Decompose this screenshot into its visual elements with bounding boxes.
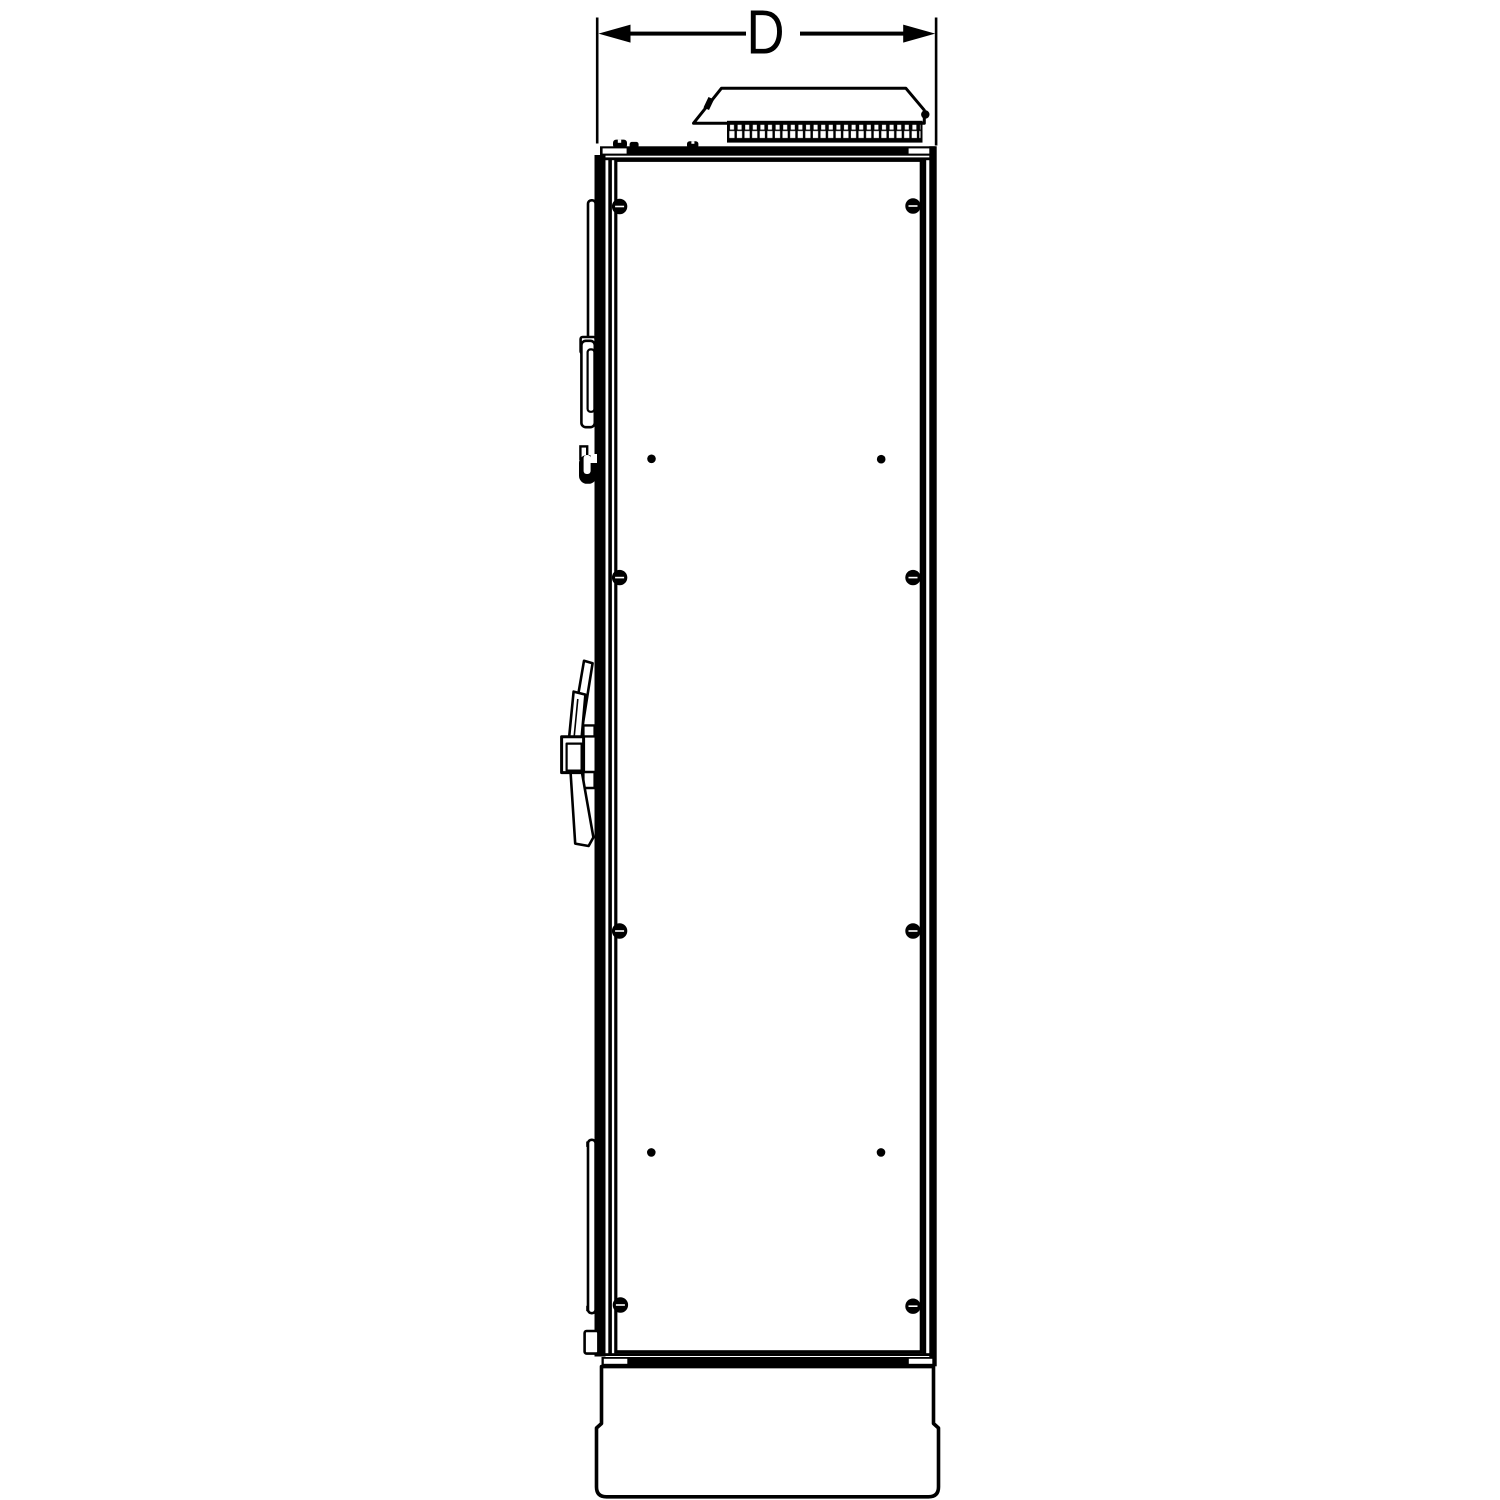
bottom-frame-line	[606, 1353, 931, 1356]
panel-screw	[612, 923, 627, 938]
top-rail-notch-right	[909, 148, 933, 153]
door-handle	[562, 661, 595, 846]
enclosure-side-view-drawing: D	[0, 0, 1500, 1500]
panel-screw	[612, 199, 627, 214]
top-rail-notch-left	[603, 148, 627, 153]
panel-screw	[905, 923, 920, 938]
rear-frame-line	[923, 159, 927, 1355]
bottom-rail-notch-right	[909, 1359, 933, 1364]
extension-line-left	[596, 18, 599, 144]
cabinet-body	[595, 146, 937, 1366]
panel-rivet	[877, 455, 886, 464]
vent-hood	[694, 88, 925, 123]
door-hardware	[562, 200, 599, 1353]
top-rail-band	[600, 146, 936, 155]
handle-mount-tab-upper	[583, 725, 594, 736]
dimension-label: D	[747, 0, 785, 68]
drawing-page: D	[0, 0, 1500, 1500]
roof-vent	[694, 88, 930, 141]
dimension-arrowhead-left-icon	[599, 25, 631, 43]
door-foot-bracket	[585, 1331, 599, 1354]
plinth-outline	[597, 1367, 939, 1497]
roof-latch-notch	[618, 140, 621, 143]
plinth-base	[597, 1365, 939, 1497]
dimension-shaft-left	[629, 32, 746, 36]
panel-rivet	[647, 455, 656, 464]
panel-screw	[905, 198, 920, 213]
extension-line-right	[935, 18, 938, 146]
door-lock-hook-slot	[584, 455, 591, 474]
panel-screw	[613, 1297, 628, 1312]
panel-screw	[905, 570, 920, 585]
panel-screw	[905, 1299, 920, 1314]
top-rail	[600, 146, 936, 160]
front-frame-line	[608, 159, 612, 1355]
vent-hood-corner-stud	[921, 110, 929, 118]
side-panel	[616, 160, 922, 1352]
bottom-rail-notch-left	[604, 1359, 628, 1364]
door-hinge-strip-lower	[588, 1140, 596, 1313]
panel-screw	[612, 570, 627, 585]
vent-grille	[728, 122, 922, 142]
rear-wall	[929, 146, 936, 1366]
dimension-arrowhead-right-icon	[903, 25, 935, 43]
door-lock-hook-gap	[591, 454, 598, 463]
plinth-top-edge	[602, 1365, 934, 1368]
door-hinge-strip-upper	[588, 200, 596, 350]
handle-lock-block	[562, 737, 584, 773]
panel-rivet	[647, 1148, 656, 1157]
panel-rivet	[877, 1148, 886, 1157]
dimension-shaft-right	[800, 32, 905, 36]
roof-latch-notch	[691, 141, 694, 144]
